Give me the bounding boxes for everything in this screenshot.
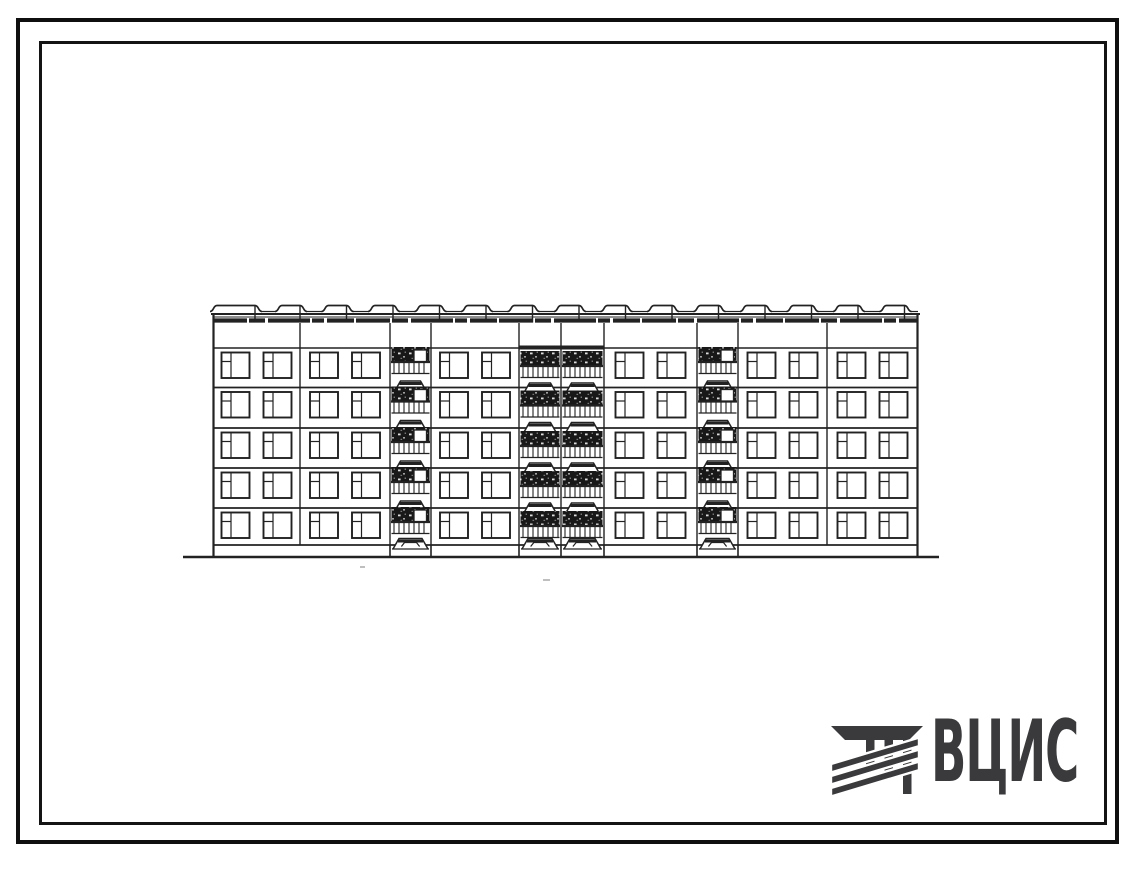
- loggia-cell: [391, 467, 430, 512]
- window: [616, 353, 644, 379]
- window: [222, 513, 250, 539]
- loggia-cell: [391, 507, 430, 534]
- window: [880, 392, 908, 418]
- window: [790, 392, 818, 418]
- window: [482, 353, 510, 379]
- window: [440, 392, 468, 418]
- window: [310, 433, 338, 459]
- window: [482, 473, 510, 499]
- window: [880, 433, 908, 459]
- window: [264, 473, 292, 499]
- vcis-logo-icon: [831, 726, 923, 798]
- loggia-cell: [562, 391, 603, 434]
- window: [658, 353, 686, 379]
- window: [748, 353, 776, 379]
- parapet-bump: [694, 306, 726, 312]
- parapet-bump: [275, 306, 307, 312]
- window: [880, 353, 908, 379]
- canopy-hat: [521, 539, 559, 550]
- entrance-canopy: [563, 539, 602, 550]
- window: [838, 392, 866, 418]
- window: [838, 473, 866, 499]
- loggia-cell: [698, 507, 737, 534]
- window: [616, 392, 644, 418]
- parapet-bump: [601, 306, 633, 312]
- parapet-bump: [647, 306, 679, 312]
- window: [658, 513, 686, 539]
- window: [790, 433, 818, 459]
- window: [310, 473, 338, 499]
- parapet-bump: [322, 306, 354, 312]
- parapet-bump: [210, 306, 262, 312]
- loggia-cell: [698, 427, 737, 472]
- canopy-hat: [699, 539, 736, 550]
- window: [880, 513, 908, 539]
- canopy-hat: [392, 539, 429, 550]
- parapet-bump: [787, 306, 819, 312]
- parapet-bump: [508, 306, 540, 312]
- emblem-beam: [831, 726, 923, 740]
- window: [440, 353, 468, 379]
- window: [790, 353, 818, 379]
- entrance-canopy: [521, 539, 559, 550]
- window: [748, 392, 776, 418]
- vcis-logo: ВЦИС: [831, 721, 1139, 798]
- parapet-bump: [833, 306, 865, 312]
- window: [352, 353, 380, 379]
- window: [352, 513, 380, 539]
- loggia-cell: [698, 467, 737, 512]
- loggia-cell: [698, 347, 737, 392]
- parapet-bump: [461, 306, 493, 312]
- window: [838, 433, 866, 459]
- window: [264, 392, 292, 418]
- parapet-bump: [368, 306, 400, 312]
- loggia-cell: [562, 511, 603, 538]
- window: [352, 473, 380, 499]
- window: [790, 473, 818, 499]
- parapet-bump: [415, 306, 447, 312]
- window: [616, 513, 644, 539]
- window: [482, 392, 510, 418]
- loggia-cell: [391, 387, 430, 432]
- window: [264, 353, 292, 379]
- window: [222, 353, 250, 379]
- loggia-cell: [698, 387, 737, 432]
- window: [616, 473, 644, 499]
- window: [748, 473, 776, 499]
- window: [838, 353, 866, 379]
- window: [790, 513, 818, 539]
- loggia-cell: [520, 391, 560, 434]
- window: [352, 433, 380, 459]
- window: [310, 392, 338, 418]
- window: [658, 473, 686, 499]
- loggia-cell: [391, 427, 430, 472]
- window: [440, 513, 468, 539]
- window: [616, 433, 644, 459]
- window: [482, 433, 510, 459]
- window: [264, 433, 292, 459]
- parapet-bump: [740, 306, 772, 312]
- window: [838, 513, 866, 539]
- parapet-bump: [554, 306, 586, 312]
- window: [310, 353, 338, 379]
- window: [352, 392, 380, 418]
- window: [440, 473, 468, 499]
- parapet-bump: [880, 306, 912, 312]
- window: [222, 473, 250, 499]
- window: [748, 433, 776, 459]
- window: [310, 513, 338, 539]
- entrance-canopy: [392, 539, 429, 550]
- window: [482, 513, 510, 539]
- vcis-logo-text: ВЦИС: [931, 709, 1078, 795]
- stray-mark: [543, 579, 550, 581]
- window: [748, 513, 776, 539]
- catalog-page: ВЦИС: [0, 0, 1139, 869]
- window: [658, 433, 686, 459]
- entrance-canopy: [699, 539, 736, 550]
- window: [222, 392, 250, 418]
- stray-mark: [360, 566, 365, 568]
- window: [658, 392, 686, 418]
- window: [440, 433, 468, 459]
- window: [880, 473, 908, 499]
- window: [222, 433, 250, 459]
- loggia-cell: [520, 511, 560, 538]
- window: [264, 513, 292, 539]
- loggia-cell: [391, 347, 430, 392]
- canopy-hat: [563, 539, 602, 550]
